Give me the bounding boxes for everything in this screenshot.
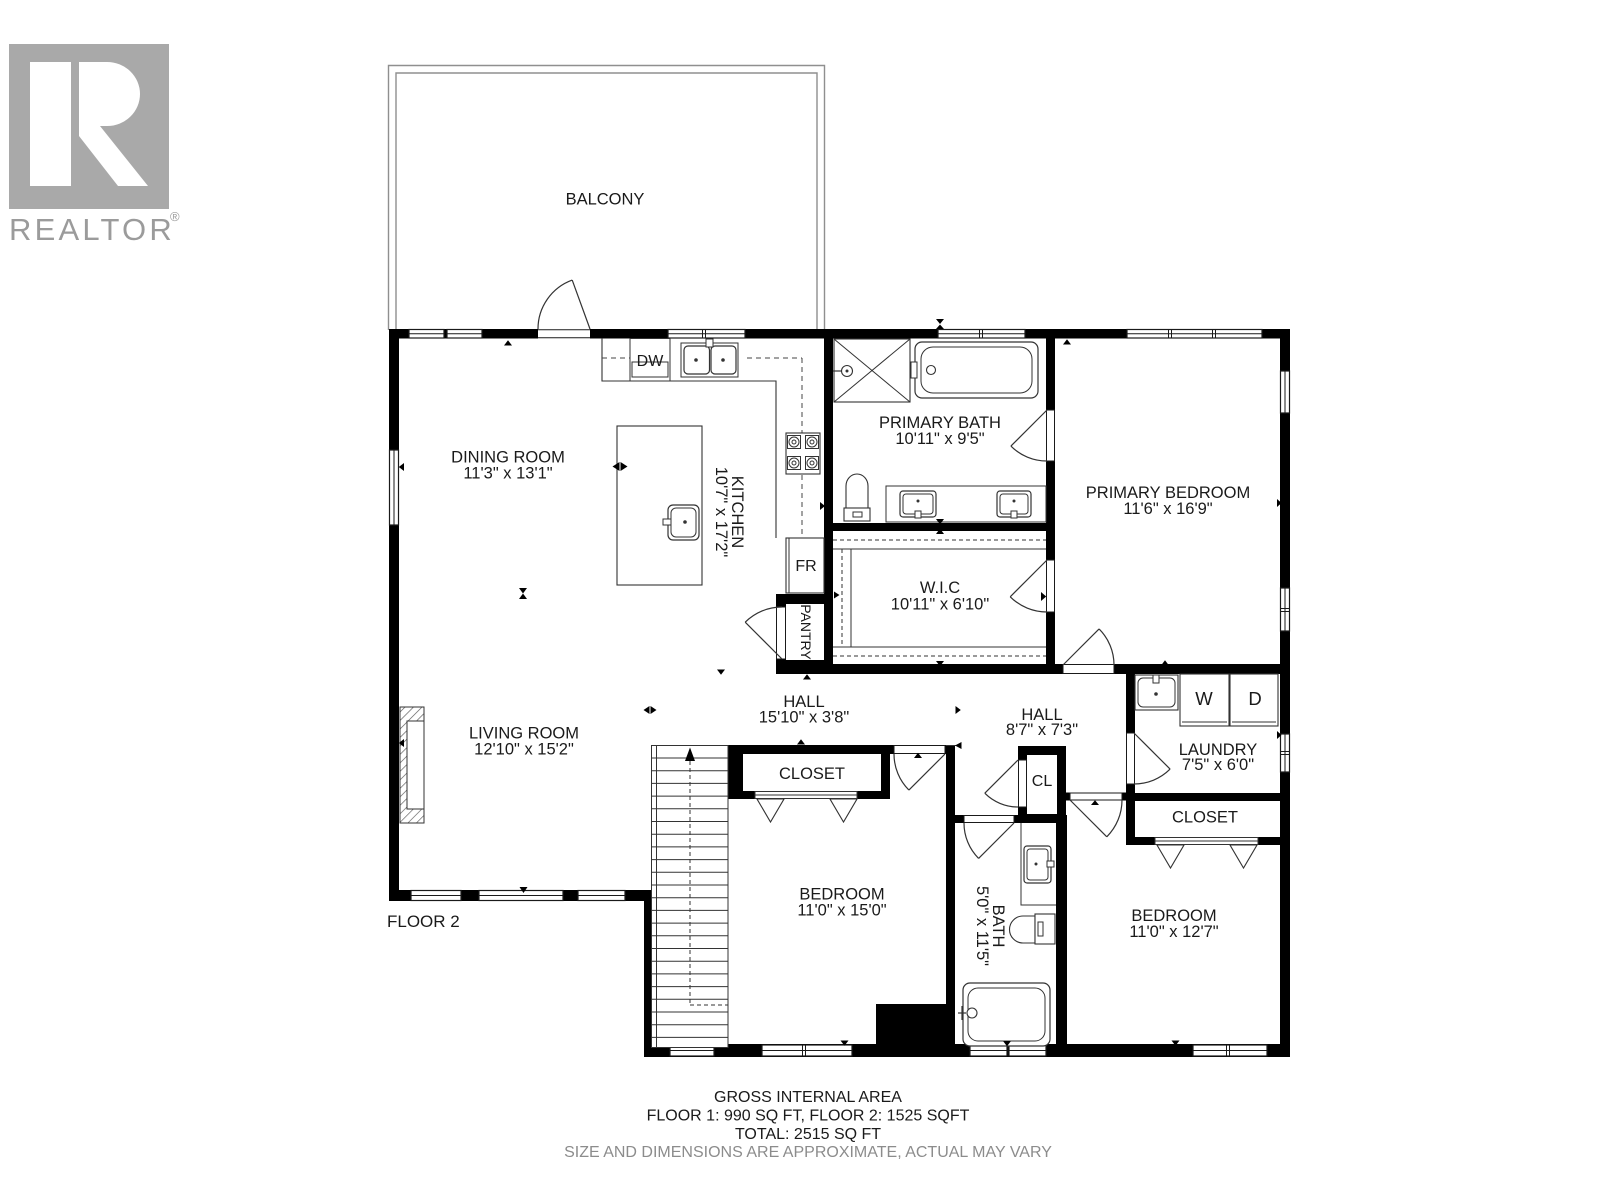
svg-text:D: D xyxy=(1248,688,1261,709)
svg-text:W.I.C: W.I.C xyxy=(920,579,960,597)
svg-text:10'11" x 9'5": 10'11" x 9'5" xyxy=(895,430,984,448)
svg-text:SIZE AND DIMENSIONS ARE APPROX: SIZE AND DIMENSIONS ARE APPROXIMATE, ACT… xyxy=(564,1144,1052,1161)
svg-text:10'11" x 6'10": 10'11" x 6'10" xyxy=(891,596,990,614)
svg-text:FLOOR 1: 990 SQ FT, FLOOR 2: 1: FLOOR 1: 990 SQ FT, FLOOR 2: 1525 SQFT xyxy=(647,1108,970,1125)
svg-text:FLOOR 2: FLOOR 2 xyxy=(387,912,460,931)
svg-text:11'0" x 15'0": 11'0" x 15'0" xyxy=(797,902,886,920)
svg-text:12'10" x 15'2": 12'10" x 15'2" xyxy=(474,741,574,759)
svg-text:TOTAL: 2515 SQ FT: TOTAL: 2515 SQ FT xyxy=(735,1126,881,1143)
svg-text:11'0" x 12'7": 11'0" x 12'7" xyxy=(1129,923,1218,941)
svg-text:CLOSET: CLOSET xyxy=(1172,809,1238,827)
svg-text:FR: FR xyxy=(795,558,816,575)
svg-text:DW: DW xyxy=(637,353,665,370)
svg-text:11'6" x 16'9": 11'6" x 16'9" xyxy=(1123,500,1212,518)
svg-text:10'7" x 17'2": 10'7" x 17'2" xyxy=(712,467,730,558)
svg-text:GROSS INTERNAL AREA: GROSS INTERNAL AREA xyxy=(714,1089,902,1106)
svg-text:CL: CL xyxy=(1032,773,1053,790)
svg-text:CLOSET: CLOSET xyxy=(779,765,845,783)
svg-text:®: ® xyxy=(170,209,180,224)
svg-text:15'10" x 3'8": 15'10" x 3'8" xyxy=(759,709,850,727)
svg-text:REALTOR: REALTOR xyxy=(9,212,175,247)
svg-text:7'5" x 6'0": 7'5" x 6'0" xyxy=(1182,756,1254,774)
svg-text:PANTRY: PANTRY xyxy=(798,604,814,660)
svg-text:8'7" x 7'3": 8'7" x 7'3" xyxy=(1006,721,1078,739)
svg-text:11'3" x 13'1": 11'3" x 13'1" xyxy=(463,465,552,483)
svg-text:5'0" x 11'5": 5'0" x 11'5" xyxy=(973,886,991,966)
svg-text:BALCONY: BALCONY xyxy=(566,191,645,209)
svg-text:W: W xyxy=(1195,688,1213,709)
